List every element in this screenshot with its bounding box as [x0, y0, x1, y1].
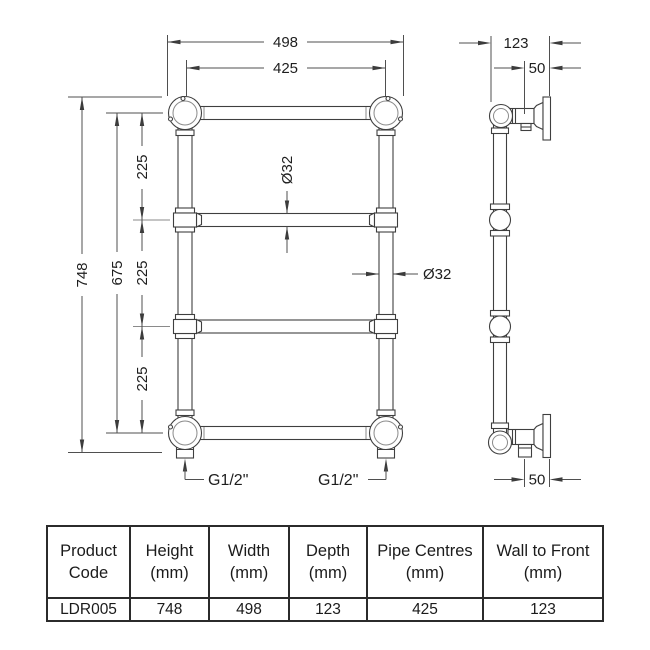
connection-left-label: G1/2": [208, 472, 248, 489]
spec-table-data-row: LDR005 748 498 123 425 123: [47, 598, 603, 621]
dim-gap2-value: 225: [134, 260, 151, 285]
callout-connection-left: G1/2": [183, 459, 249, 490]
technical-drawing-page: 498 425 748 675: [0, 0, 650, 650]
connection-right-label: G1/2": [318, 472, 358, 489]
front-bottom-stubs: [177, 446, 395, 458]
dim-width-outer-value: 498: [273, 34, 298, 51]
header-height: Height (mm): [130, 526, 209, 598]
dim-gap1-value: 225: [134, 154, 151, 179]
dimension-wall-bottom: 50: [494, 459, 581, 489]
cell-pipe-centres: 425: [367, 598, 483, 621]
dim-pipe-centres-value: 425: [273, 60, 298, 77]
side-view: [489, 97, 551, 458]
side-pipe: [492, 116, 509, 443]
dim-wall-top-value: 50: [529, 60, 546, 77]
dim-rail-centres-value: 675: [109, 260, 126, 285]
spec-table: Product Code Height (mm) Width (mm) Dept…: [46, 525, 604, 622]
cell-depth: 123: [289, 598, 367, 621]
header-width: Width (mm): [209, 526, 289, 598]
header-pipe-centres: Pipe Centres (mm): [367, 526, 483, 598]
callout-connection-right: G1/2": [318, 459, 388, 490]
cell-product-code: LDR005: [47, 598, 130, 621]
front-view: [169, 97, 403, 459]
dim-height-overall-value: 748: [74, 262, 91, 287]
spec-table-header-row: Product Code Height (mm) Width (mm) Dept…: [47, 526, 603, 598]
dimension-rail-gaps: 225 225 225: [133, 113, 170, 433]
cell-height: 748: [130, 598, 209, 621]
dim-wall-bottom-value: 50: [529, 472, 546, 489]
towel-rail-drawing: 498 425 748 675: [0, 0, 650, 520]
dim-depth-value: 123: [503, 35, 528, 52]
dimension-rail-diameter: Ø32: [279, 156, 296, 253]
header-wall-to-front: Wall to Front (mm): [483, 526, 603, 598]
dimension-pipe-centres: 425: [187, 60, 386, 96]
dim-pipe-diameter-value: Ø32: [423, 266, 451, 283]
cell-width: 498: [209, 598, 289, 621]
front-junction-fittings: [174, 208, 398, 339]
dim-rail-diameter-value: Ø32: [279, 156, 296, 184]
header-product-code: Product Code: [47, 526, 130, 598]
dim-gap3-value: 225: [134, 366, 151, 391]
header-depth: Depth (mm): [289, 526, 367, 598]
cell-wall-to-front: 123: [483, 598, 603, 621]
dimension-pipe-diameter: Ø32: [352, 266, 451, 283]
